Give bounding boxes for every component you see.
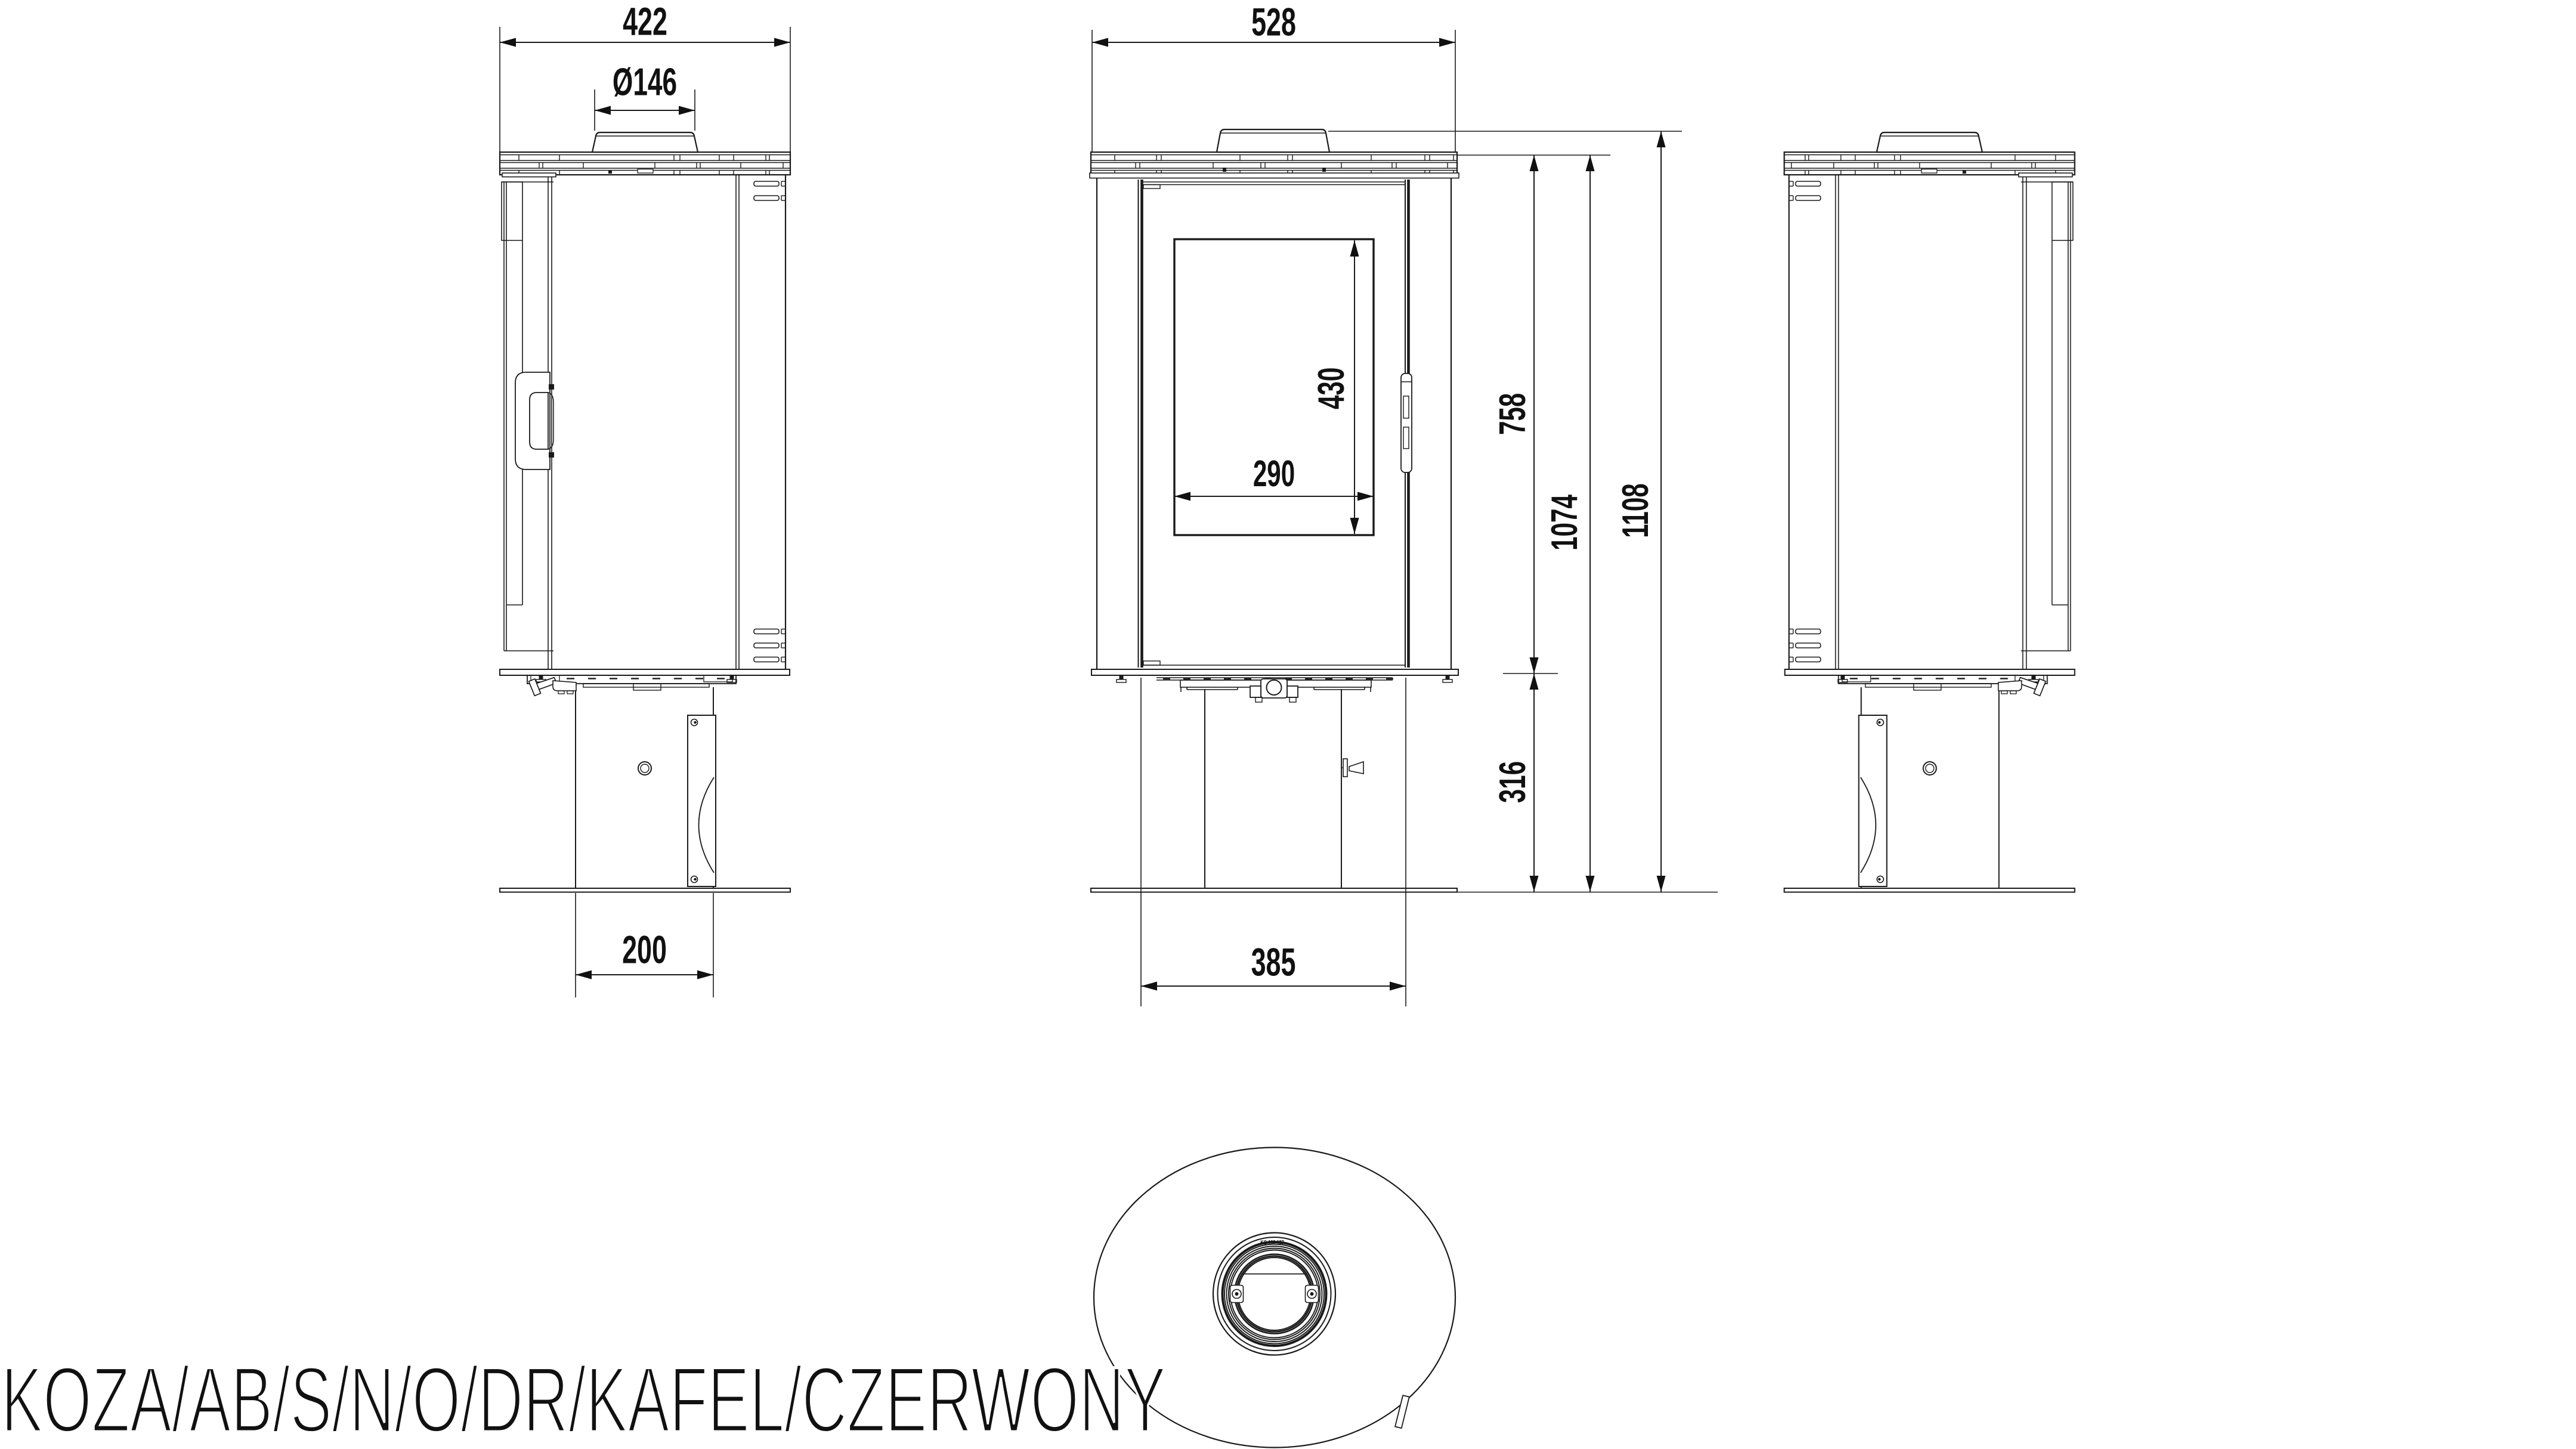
svg-text:385: 385 bbox=[1251, 940, 1296, 984]
svg-text:200: 200 bbox=[622, 928, 667, 972]
svg-text:316: 316 bbox=[1492, 761, 1533, 803]
svg-text:758: 758 bbox=[1492, 393, 1533, 435]
svg-text:KQ 188-137: KQ 188-137 bbox=[1260, 1239, 1284, 1246]
svg-text:1108: 1108 bbox=[1615, 483, 1656, 537]
svg-text:430: 430 bbox=[1311, 367, 1352, 409]
svg-text:KOZA/AB/S/N/O/DR/KAFEL/CZERWON: KOZA/AB/S/N/O/DR/KAFEL/CZERWONY bbox=[1, 1348, 1166, 1449]
svg-text:290: 290 bbox=[1253, 453, 1295, 495]
svg-text:528: 528 bbox=[1251, 0, 1296, 44]
svg-text:1074: 1074 bbox=[1544, 495, 1585, 551]
svg-text:Ø146: Ø146 bbox=[613, 60, 677, 104]
svg-text:422: 422 bbox=[623, 0, 667, 44]
